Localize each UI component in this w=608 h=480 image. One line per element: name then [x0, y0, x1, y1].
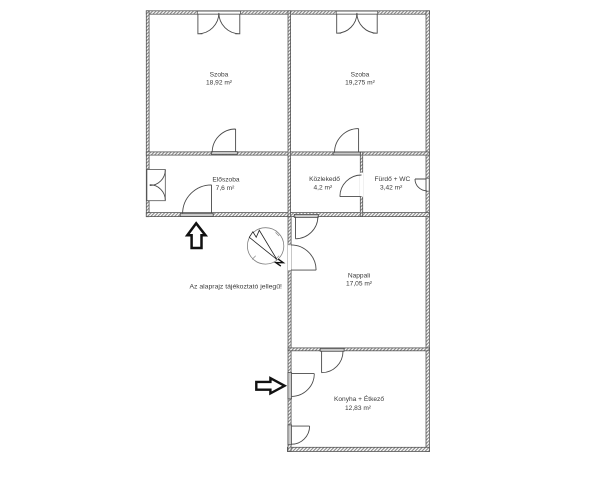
svg-text:Szoba: Szoba	[351, 72, 370, 79]
svg-text:Az alaprajz tájékoztató jelleg: Az alaprajz tájékoztató jellegű!	[189, 283, 282, 290]
svg-text:Nappali: Nappali	[348, 273, 371, 280]
svg-text:Előszoba: Előszoba	[212, 177, 239, 184]
svg-text:Fürdő + WC: Fürdő + WC	[375, 176, 411, 183]
svg-text:19,275 m²: 19,275 m²	[345, 80, 375, 87]
svg-text:Konyha + Étkező: Konyha + Étkező	[334, 394, 384, 403]
svg-text:18,92 m²: 18,92 m²	[206, 80, 233, 87]
svg-text:12,83 m²: 12,83 m²	[345, 405, 372, 412]
svg-text:17,05 m²: 17,05 m²	[346, 281, 373, 288]
svg-text:7,6 m²: 7,6 m²	[216, 185, 235, 192]
svg-text:3,42 m²: 3,42 m²	[380, 185, 403, 192]
svg-text:Szoba: Szoba	[210, 72, 229, 79]
svg-text:4,2 m²: 4,2 m²	[313, 185, 332, 192]
svg-text:Közlekedő: Közlekedő	[309, 176, 340, 183]
